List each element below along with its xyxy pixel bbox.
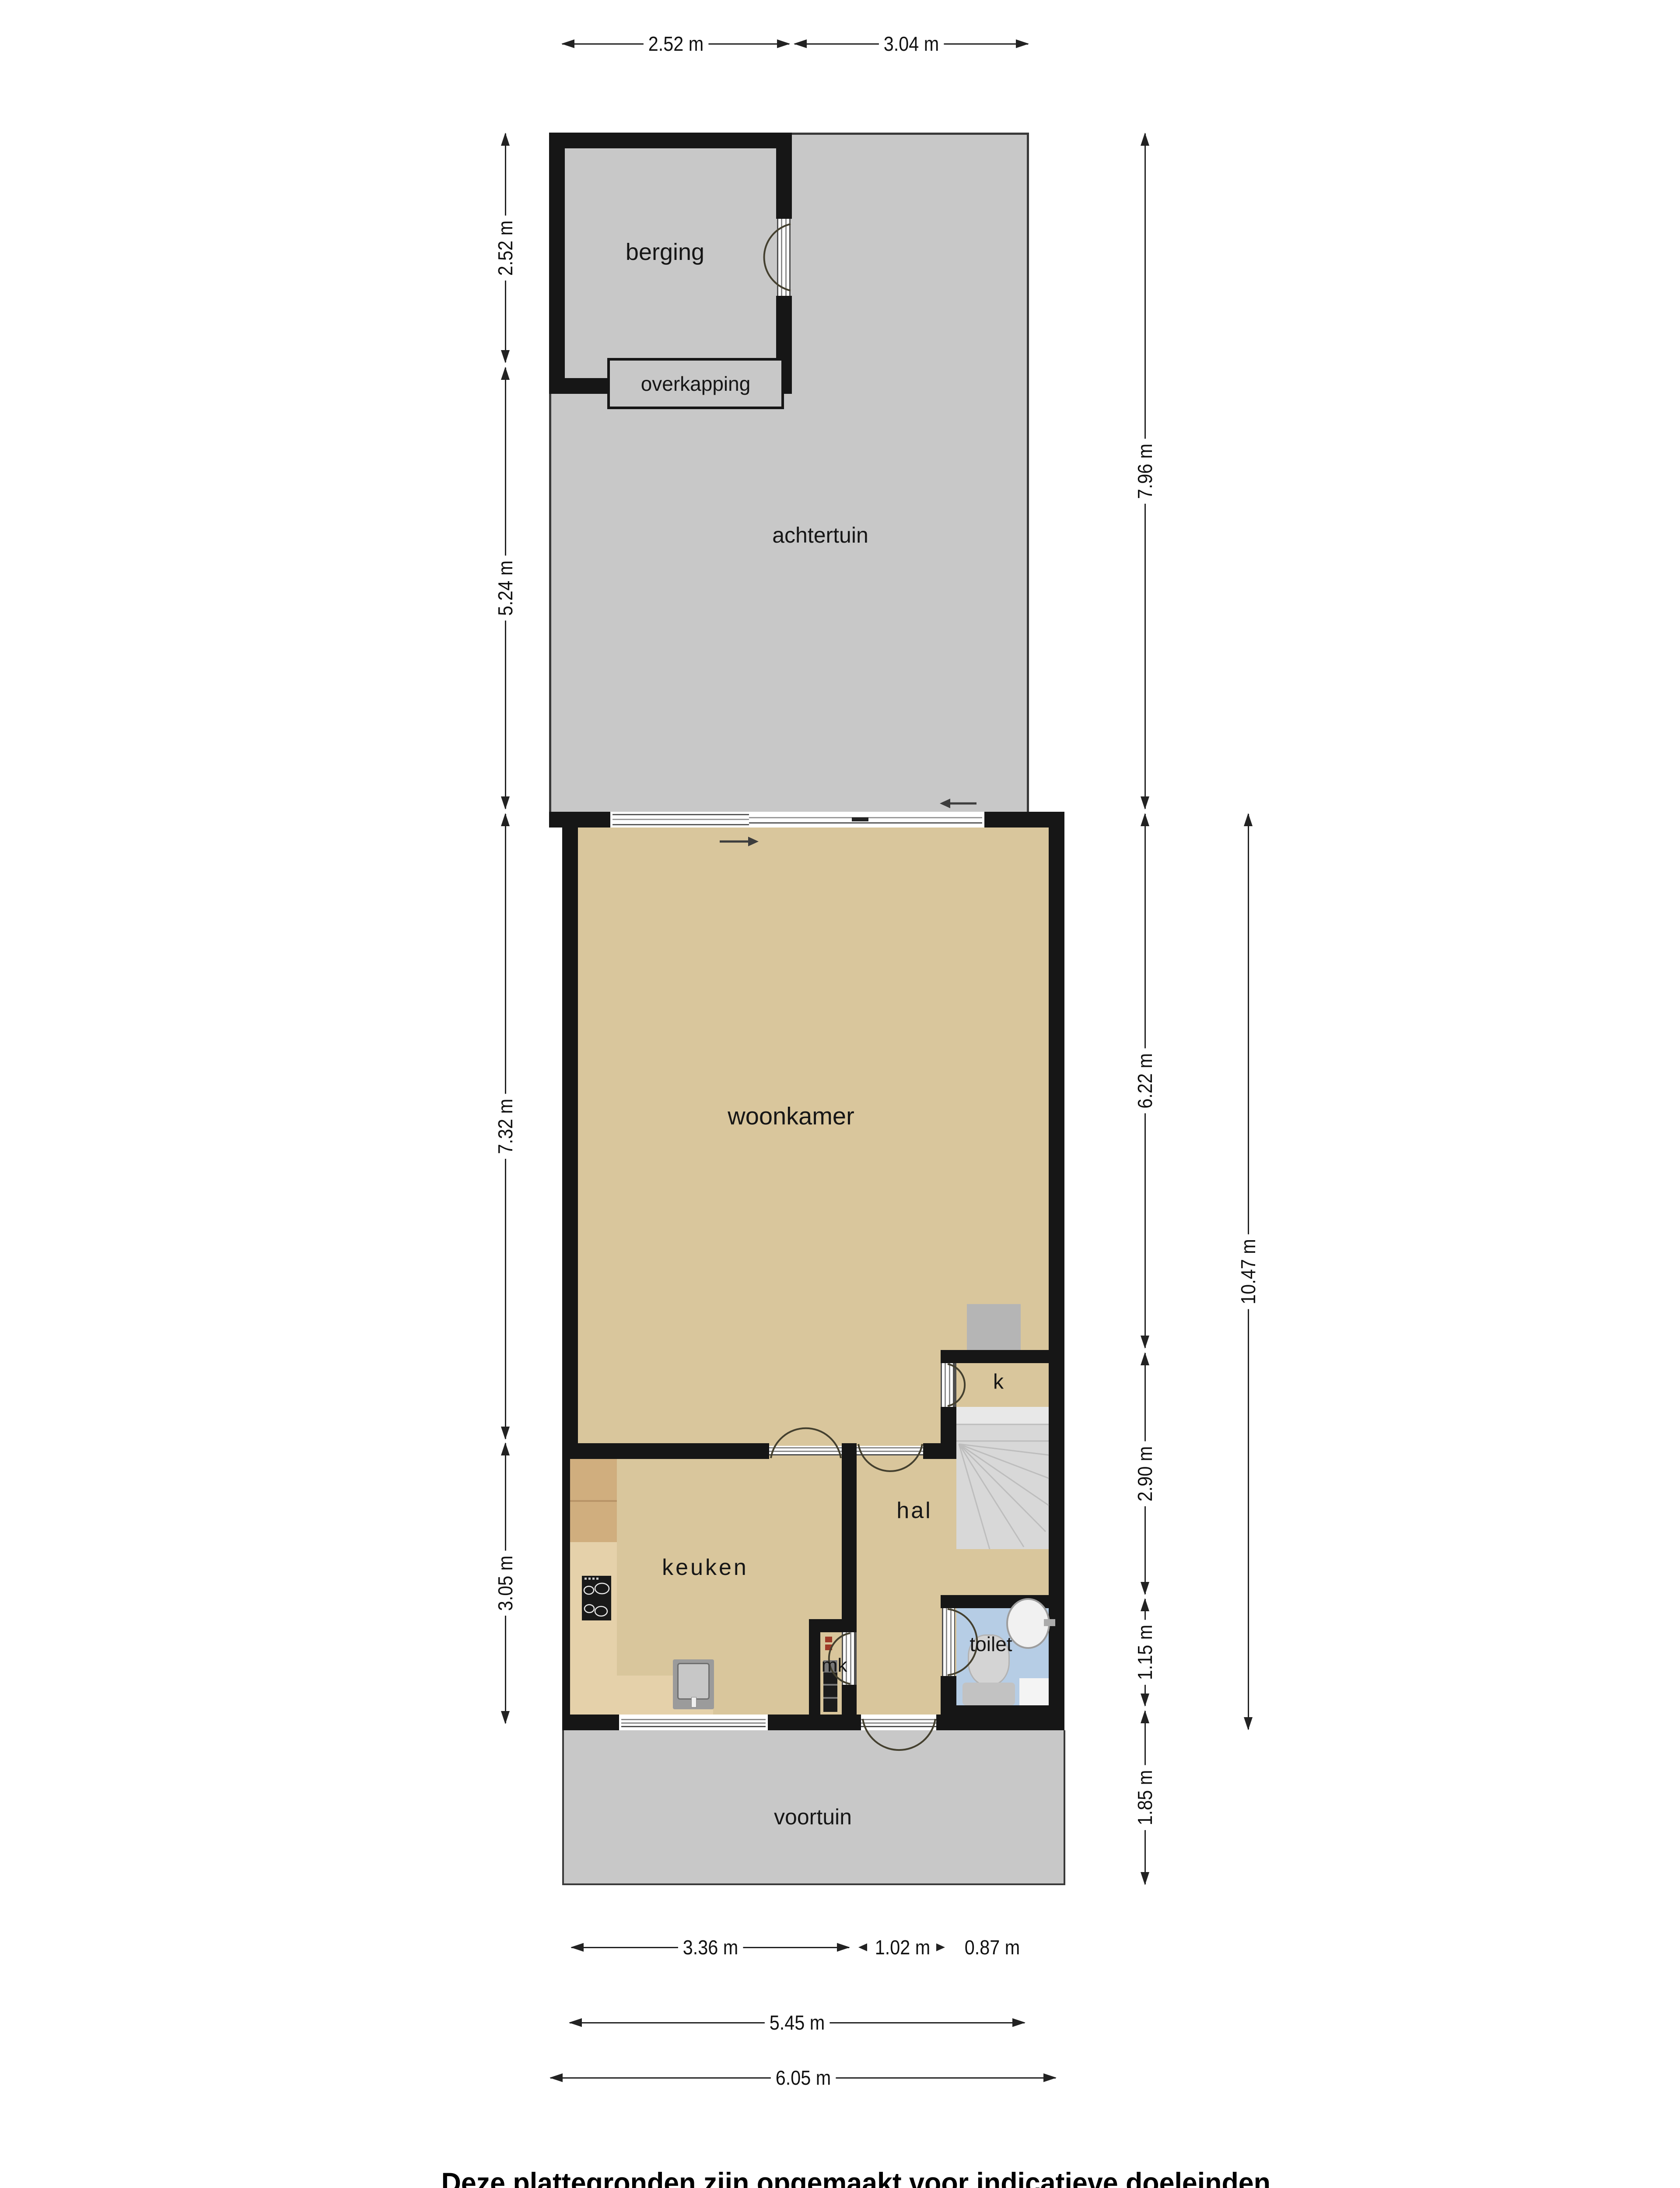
washbasin-tap bbox=[1044, 1619, 1055, 1626]
dim-bottom-336: 3.36 m bbox=[570, 1942, 850, 1953]
meter-box-red2 bbox=[825, 1645, 832, 1650]
k-wall-lower bbox=[941, 1422, 956, 1459]
dim-right-3: 2.90 m bbox=[1139, 1352, 1151, 1595]
toilet-label: toilet bbox=[969, 1632, 1012, 1656]
dim-top-1: 2.52 m bbox=[561, 38, 790, 49]
berging-wall-left bbox=[549, 133, 565, 394]
mk-label: mk bbox=[822, 1655, 847, 1676]
berging-wall-right-upper bbox=[776, 133, 792, 219]
dim-bottom-102: 1.02 m bbox=[871, 1936, 934, 1959]
voortuin-label: voortuin bbox=[774, 1804, 852, 1830]
wall-pier-2 bbox=[923, 1443, 941, 1459]
dim-bottom-087: 0.87 m bbox=[961, 1936, 1024, 1959]
mk-wall-top bbox=[809, 1619, 857, 1632]
house-wall-bottom-right bbox=[936, 1715, 1064, 1730]
dim-right-1: 7.96 m bbox=[1139, 133, 1151, 810]
berging-wall-top bbox=[549, 133, 792, 148]
woonkamer-label: woonkamer bbox=[728, 1102, 854, 1130]
meter-box-red bbox=[825, 1637, 832, 1642]
staircase bbox=[956, 1407, 1049, 1549]
kitchen-cabinet-tall bbox=[570, 1459, 617, 1542]
berging-label: berging bbox=[626, 238, 704, 266]
dim-tick-left bbox=[858, 1943, 867, 1951]
k-door-stub bbox=[941, 1407, 956, 1422]
washbasin bbox=[1006, 1598, 1050, 1649]
berging-door bbox=[777, 219, 791, 296]
mk-door-stub bbox=[842, 1685, 857, 1715]
kitchen-sink-tap bbox=[691, 1697, 696, 1708]
kitchen-sink-basin bbox=[677, 1663, 710, 1700]
keuken-door bbox=[769, 1446, 842, 1455]
toilet-wall-left-lower bbox=[941, 1676, 956, 1715]
dim-left-4: 3.05 m bbox=[500, 1442, 511, 1724]
dim-right-4: 1.15 m bbox=[1139, 1598, 1151, 1707]
k-closet-wall-top bbox=[941, 1350, 1064, 1363]
overkapping-label: overkapping bbox=[641, 372, 751, 396]
keuken-window bbox=[621, 1718, 766, 1727]
hal-label: hal bbox=[896, 1497, 932, 1524]
house-wall-right bbox=[1049, 812, 1064, 1730]
mk-wall-left bbox=[809, 1632, 820, 1715]
wall-keuken-hal bbox=[842, 1459, 857, 1619]
stair-landing bbox=[967, 1304, 1021, 1350]
toilet-corner-unit bbox=[1019, 1678, 1049, 1705]
cooktop bbox=[582, 1576, 611, 1620]
achtertuin-label: achtertuin bbox=[772, 522, 868, 548]
toilet-door bbox=[942, 1608, 955, 1676]
floorplan-page: berging overkapping achtertuin woonkamer… bbox=[0, 0, 1680, 2188]
house-wall-bottom-mid bbox=[768, 1715, 861, 1730]
disclaimer-line-1: Deze plattegronden zijn opgemaakt voor i… bbox=[441, 2166, 1278, 2188]
k-closet-door bbox=[941, 1363, 956, 1407]
dim-right-5: 1.85 m bbox=[1139, 1710, 1151, 1885]
front-door bbox=[861, 1718, 936, 1727]
keuken-label: keuken bbox=[662, 1554, 749, 1581]
dim-right-total: 10.47 m bbox=[1242, 813, 1254, 1730]
house-wall-bottom-left bbox=[562, 1715, 619, 1730]
dim-top-2: 3.04 m bbox=[794, 38, 1029, 49]
dim-tick-right bbox=[936, 1943, 945, 1951]
wall-pier-1 bbox=[842, 1443, 857, 1459]
hal-door bbox=[857, 1446, 923, 1455]
dim-bottom-605: 6.05 m bbox=[549, 2072, 1057, 2083]
dim-bottom-545: 5.45 m bbox=[569, 2017, 1025, 2028]
house-wall-top-left bbox=[549, 812, 610, 828]
wall-woonkamer-keuken bbox=[578, 1443, 769, 1459]
toilet-wall-top bbox=[941, 1595, 1064, 1608]
k-closet-label: k bbox=[993, 1370, 1004, 1394]
staircase-top-tread bbox=[956, 1407, 1049, 1424]
sliding-door-handle bbox=[852, 817, 868, 821]
dim-left-1: 2.52 m bbox=[500, 133, 511, 363]
sliding-door-rail-left bbox=[612, 814, 749, 825]
kitchen-counter-left bbox=[570, 1542, 617, 1715]
toilet-cistern bbox=[962, 1683, 1015, 1705]
dim-left-3: 7.32 m bbox=[500, 813, 511, 1440]
dim-left-2: 5.24 m bbox=[500, 367, 511, 810]
dim-right-2: 6.22 m bbox=[1139, 813, 1151, 1349]
